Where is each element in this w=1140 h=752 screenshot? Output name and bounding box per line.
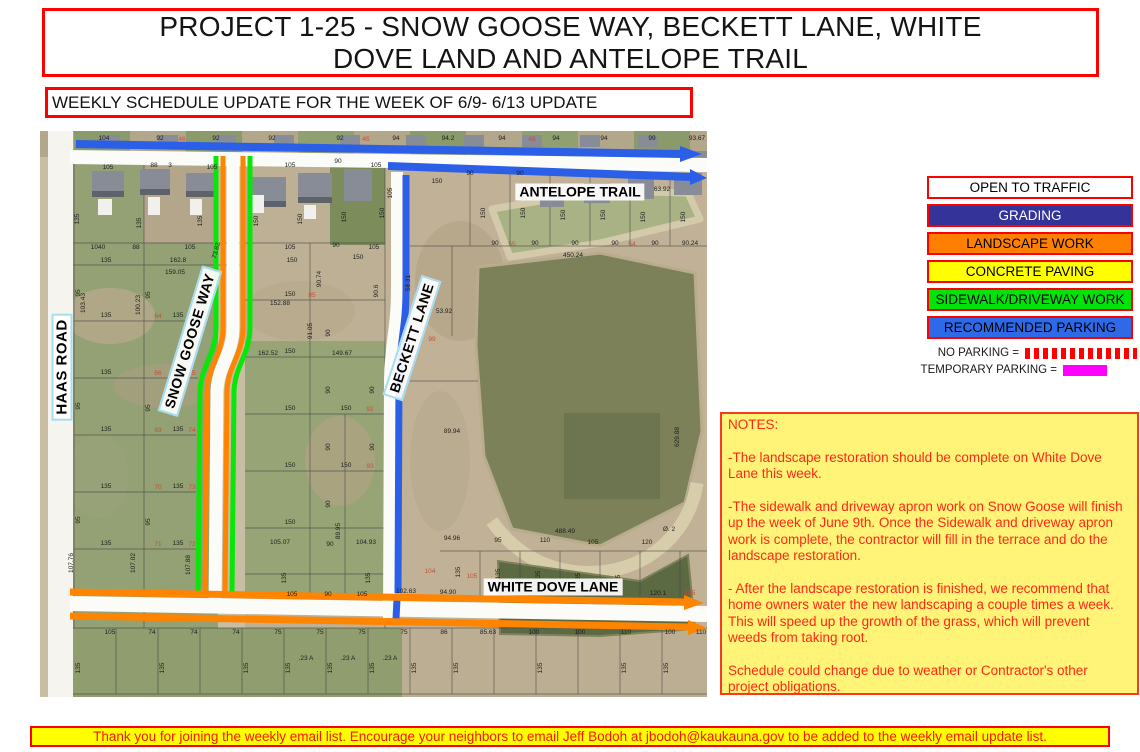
parcel-number: 135: [365, 572, 372, 583]
parcel-number: 90: [369, 443, 376, 451]
parcel-number: 89.94: [444, 428, 461, 435]
parcel-number: 92: [268, 135, 276, 142]
parcel-number: 488.49: [555, 528, 575, 535]
parcel-number: 75: [316, 629, 324, 636]
parcel-number: 89.95: [335, 522, 342, 539]
legend: OPEN TO TRAFFIC GRADING LANDSCAPE WORK C…: [895, 176, 1137, 376]
parcel-number: 105: [369, 244, 380, 251]
parcel-number: 74: [190, 629, 198, 636]
parcel-number: 100: [575, 629, 586, 636]
parcel-number: 90: [325, 386, 332, 394]
parcel-number: 150: [560, 209, 567, 220]
parcel-number: 135: [411, 662, 418, 673]
parcel-number: 90.24: [682, 240, 699, 247]
notes-paragraph: -The landscape restoration should be com…: [728, 450, 1131, 483]
legend-item-open-to-traffic: OPEN TO TRAFFIC: [927, 176, 1133, 199]
parcel-number: 53.92: [436, 308, 453, 315]
parcel-number: 135: [281, 572, 288, 583]
parcel-number: 135: [197, 215, 204, 226]
parcel-number: 90: [324, 591, 332, 598]
parcel-number: 149.67: [332, 350, 352, 357]
parcel-number: 150: [297, 213, 304, 224]
aerial-map: 104929292929494.29494949993.674645461058…: [40, 131, 707, 697]
parcel-number: 105: [371, 162, 382, 169]
notes-paragraph: Schedule could change due to weather or …: [728, 663, 1131, 696]
parcel-number: 135: [243, 662, 250, 673]
parcel-number: 120: [642, 539, 653, 546]
parcel-number: 95: [145, 404, 152, 412]
parcel-number: 94.96: [444, 535, 461, 542]
aerial-map-svg: 104929292929494.29494949993.674645461058…: [40, 131, 707, 697]
parcel-number: 94: [552, 135, 560, 142]
parcel-number: 100.23: [135, 295, 142, 315]
parcel-number: 150: [600, 209, 607, 220]
parcel-number: 90: [326, 541, 334, 548]
parcel-number: 150: [287, 257, 298, 264]
parcel-number: 90: [325, 443, 332, 451]
parcel-number: 162.52: [258, 350, 278, 357]
parcel-number: 135: [453, 662, 460, 673]
parcel-number: Ø. 2: [663, 526, 676, 533]
parcel-number: 135: [159, 662, 166, 673]
parcel-number: 90: [571, 240, 579, 247]
legend-temporary-parking-row: TEMPORARY PARKING =: [895, 364, 1137, 376]
parcel-number: 85.63: [480, 629, 497, 636]
parcel-number: 1040: [91, 244, 106, 251]
parcel-number: 75: [400, 629, 408, 636]
legend-label: CONCRETE PAVING: [966, 264, 1095, 279]
temporary-parking-label: TEMPORARY PARKING =: [921, 364, 1057, 376]
parcel-number: 135: [136, 217, 143, 228]
parcel-number: 152.88: [270, 300, 290, 307]
parcel-number: 150: [432, 178, 443, 185]
parcel-number: 135: [663, 662, 670, 673]
parcel-number: 75: [358, 629, 366, 636]
parcel-number: 105: [185, 244, 196, 251]
parcel-number: 88: [150, 162, 158, 169]
parcel-number: 71: [154, 541, 162, 548]
notes-box: NOTES: -The landscape restoration should…: [720, 412, 1139, 695]
parcel-number: 64: [154, 313, 162, 320]
project-title-box: PROJECT 1-25 - SNOW GOOSE WAY, BECKETT L…: [42, 8, 1099, 77]
parcel-number: 94.2: [442, 135, 455, 142]
parcel-number: 105: [285, 244, 296, 251]
parcel-number: 90: [334, 158, 342, 165]
parcel-number: 135: [327, 662, 334, 673]
parcel-number: 450.24: [563, 252, 583, 259]
parcel-number: 104: [425, 568, 436, 575]
notes-paragraph: - After the landscape restoration is fin…: [728, 581, 1131, 647]
parcel-number: 90.6: [373, 284, 380, 297]
parcel-number: 90: [651, 240, 659, 247]
parcel-number: 110: [696, 629, 707, 636]
parcel-number: 94.90: [440, 589, 457, 596]
parcel-number: 95: [75, 516, 82, 524]
parcel-number: 150: [253, 215, 260, 226]
legend-label: LANDSCAPE WORK: [966, 236, 1094, 251]
legend-item-landscape-work: LANDSCAPE WORK: [927, 232, 1133, 255]
street-label-white-dove-lane: WHITE DOVE LANE: [484, 579, 623, 596]
parcel-number: 105: [387, 187, 394, 198]
legend-item-concrete-paving: CONCRETE PAVING: [927, 260, 1133, 283]
parcel-number: 75: [274, 629, 282, 636]
parcel-number: 105: [285, 162, 296, 169]
parcel-number: 66: [154, 370, 162, 377]
parcel-number: 135: [74, 213, 81, 224]
parcel-number: 92: [156, 135, 164, 142]
parcel-number: 94: [498, 135, 506, 142]
street-label-antelope-trail: ANTELOPE TRAIL: [515, 184, 644, 201]
project-title-line1: PROJECT 1-25 - SNOW GOOSE WAY, BECKETT L…: [159, 11, 981, 43]
parcel-number: 135: [285, 662, 292, 673]
parcel-number: 150: [341, 405, 352, 412]
parcel-number: .23 A: [299, 655, 314, 662]
no-parking-swatch: [1025, 348, 1137, 359]
parcel-number: .23 A: [383, 655, 398, 662]
parcel-number: 95: [145, 291, 152, 299]
parcel-number: 135: [101, 540, 112, 547]
parcel-number: 105: [207, 164, 218, 171]
weekly-update-banner: WEEKLY SCHEDULE UPDATE FOR THE WEEK OF 6…: [45, 87, 693, 118]
parcel-number: 135: [101, 257, 112, 264]
parcel-number: 90: [516, 170, 524, 177]
parcel-number: 110: [621, 629, 632, 636]
parcel-number: 70: [154, 484, 162, 491]
legend-no-parking-row: NO PARKING =: [895, 347, 1137, 359]
parcel-number: 150: [353, 254, 364, 261]
parcel-number: 150: [341, 211, 348, 222]
parcel-number: 45: [362, 136, 370, 143]
legend-label: OPEN TO TRAFFIC: [970, 180, 1091, 195]
parcel-number: 107.88: [185, 555, 192, 575]
street-label-haas-road: HAAS ROAD: [52, 313, 73, 420]
parcel-number: 3: [168, 162, 172, 169]
parcel-number: 73: [188, 484, 196, 491]
parcel-number: 150: [640, 211, 647, 222]
parcel-number: 135: [101, 369, 112, 376]
parcel-number: 150: [520, 207, 527, 218]
parcel-number: 93.67: [689, 135, 706, 142]
parcel-number: 95: [494, 537, 502, 544]
parcel-number: 58.31: [405, 274, 412, 291]
no-parking-label: NO PARKING =: [938, 347, 1019, 359]
parcel-number: 110: [540, 537, 551, 544]
parcel-number: 135: [101, 483, 112, 490]
parcel-number: 55: [508, 241, 516, 248]
project-title-line2: DOVE LAND AND ANTELOPE TRAIL: [333, 43, 808, 75]
parcel-number: 135: [173, 312, 184, 319]
parcel-number: 92: [336, 135, 344, 142]
parcel-number: 104.93: [356, 539, 376, 546]
parcel-number: 120.1: [650, 590, 667, 597]
parcel-number: 105: [588, 539, 599, 546]
parcel-number: 150: [285, 348, 296, 355]
parcel-number: 105: [105, 629, 116, 636]
parcel-number: 95: [75, 402, 82, 410]
parcel-number: 99: [648, 135, 656, 142]
parcel-number: 90: [466, 170, 474, 177]
legend-item-sidewalk-driveway: SIDEWALK/DRIVEWAY WORK: [927, 288, 1133, 311]
parcel-number: 72: [188, 541, 196, 548]
parcel-number: 100: [529, 629, 540, 636]
parcel-number: 99: [428, 336, 436, 343]
legend-item-grading: GRADING: [927, 204, 1133, 227]
parcel-number: 74: [148, 629, 156, 636]
legend-item-recommended-parking: RECOMMENDED PARKING: [927, 316, 1133, 339]
temporary-parking-swatch: [1063, 365, 1107, 376]
parcel-number: 135: [621, 662, 628, 673]
parcel-number: 135: [75, 662, 82, 673]
parcel-number: 90: [325, 500, 332, 508]
parcel-number: 105: [103, 164, 114, 171]
parcel-number: 94: [600, 135, 608, 142]
parcel-number: 105: [467, 573, 478, 580]
parcel-number: 105.07: [270, 539, 290, 546]
parcel-number: 105: [357, 591, 368, 598]
notes-paragraph: -The sidewalk and driveway apron work on…: [728, 499, 1131, 565]
parcel-number: 135: [455, 566, 462, 577]
parcel-number: 85: [308, 292, 316, 299]
parcel-number: 46: [178, 136, 186, 143]
parcel-number: 90: [611, 240, 619, 247]
parcel-number: 135: [537, 662, 544, 673]
parcel-number: 105: [287, 591, 298, 598]
parcel-number: 629.88: [674, 427, 681, 447]
parcel-number: 107.76: [68, 553, 75, 573]
parcel-number: 93: [366, 463, 374, 470]
legend-label: GRADING: [998, 208, 1061, 223]
parcel-number: 159.05: [165, 269, 185, 276]
parcel-number: 150: [680, 211, 687, 222]
parcel-number: 46: [528, 136, 536, 143]
parcel-number: 95: [145, 518, 152, 526]
parcel-number: 150: [285, 291, 296, 298]
parcel-number: 86: [440, 629, 448, 636]
parcel-number: 135: [173, 483, 184, 490]
parcel-number: 88: [132, 244, 140, 251]
parcel-number: 74: [188, 427, 196, 434]
parcel-number: 135: [101, 312, 112, 319]
parcel-number: 90: [491, 240, 499, 247]
parcel-number: 92: [366, 406, 374, 413]
notes-heading: NOTES:: [728, 417, 1131, 434]
parcel-number: 95: [75, 289, 82, 297]
parcel-number: 63.92: [654, 186, 671, 193]
parcel-number: .23 A: [341, 655, 356, 662]
parcel-number: 135: [101, 426, 112, 433]
beckett-parking-stub: [396, 599, 397, 619]
parcel-number: 90: [531, 240, 539, 247]
parcel-number: 135: [173, 426, 184, 433]
parcel-number: 90: [369, 386, 376, 394]
parcel-number: 107.02: [130, 553, 137, 573]
legend-label: RECOMMENDED PARKING: [944, 320, 1116, 335]
parcel-number: 90: [325, 329, 332, 337]
parcel-number: 150: [285, 462, 296, 469]
parcel-number: 102.63: [396, 588, 416, 595]
parcel-number: 150: [285, 405, 296, 412]
parcel-number: 135: [369, 662, 376, 673]
parcel-number: 135: [173, 540, 184, 547]
parcel-number: 104: [99, 135, 110, 142]
parcel-number: 162.8: [170, 257, 187, 264]
parcel-number: 150: [480, 207, 487, 218]
parcel-number: 90: [332, 242, 340, 249]
parcel-number: 91.05: [307, 322, 314, 339]
parcel-number: 150: [285, 519, 296, 526]
parcel-number: 150: [379, 207, 386, 218]
parcel-number: 54: [628, 241, 636, 248]
parcel-number: 90.74: [316, 270, 323, 287]
parcel-number: 105: [685, 590, 696, 597]
parcel-number: 92: [212, 135, 220, 142]
parcel-number: 69: [154, 427, 162, 434]
parcel-number: 150: [341, 462, 352, 469]
parcel-number: 74: [232, 629, 240, 636]
parcel-number: 94: [392, 135, 400, 142]
parcel-number: 100: [665, 629, 676, 636]
legend-label: SIDEWALK/DRIVEWAY WORK: [935, 292, 1124, 307]
email-list-footer: Thank you for joining the weekly email l…: [30, 726, 1110, 747]
